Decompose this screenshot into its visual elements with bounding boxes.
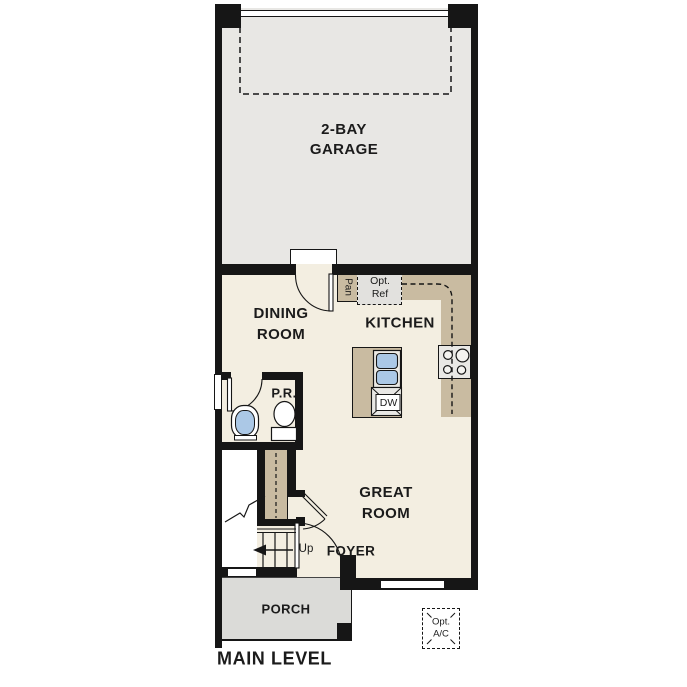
floor-plan: 2-BAYGARAGE DININGROOM KITCHEN GREATROOM… — [0, 0, 687, 687]
garage-label: 2-BAYGARAGE — [310, 120, 378, 160]
upper-cabinet-dashed-line — [402, 284, 452, 414]
pr-door-leaf — [228, 378, 232, 411]
island-sink — [374, 351, 401, 388]
plan-linework — [0, 0, 687, 687]
opt-ac-label: Opt.A/C — [432, 617, 450, 640]
stair-landing-lines — [257, 529, 296, 533]
garage-entry-door-leaf — [329, 274, 333, 311]
powder-room-label: P.R. — [271, 386, 296, 401]
pr-sink — [232, 406, 259, 441]
stair-break-line — [225, 496, 265, 522]
opt-ref-label: Opt.Ref — [370, 275, 390, 301]
porch-label: PORCH — [262, 602, 311, 617]
dining-room-label: DININGROOM — [254, 303, 309, 345]
stair-up-label: Up — [299, 543, 314, 555]
garage-setback-dashed-line — [240, 17, 451, 94]
stair-arrow-head — [253, 545, 266, 556]
closet-door-leaf — [300, 492, 327, 520]
foyer-label: FOYER — [327, 544, 376, 559]
main-level-title: MAIN LEVEL — [217, 649, 332, 670]
dishwasher-label: DW — [380, 397, 398, 409]
great-room-label: GREATROOM — [359, 482, 412, 524]
cooktop-burners — [444, 349, 469, 374]
pantry-label: Pan — [343, 278, 354, 296]
kitchen-label: KITCHEN — [365, 315, 434, 332]
pr-toilet — [272, 402, 297, 441]
